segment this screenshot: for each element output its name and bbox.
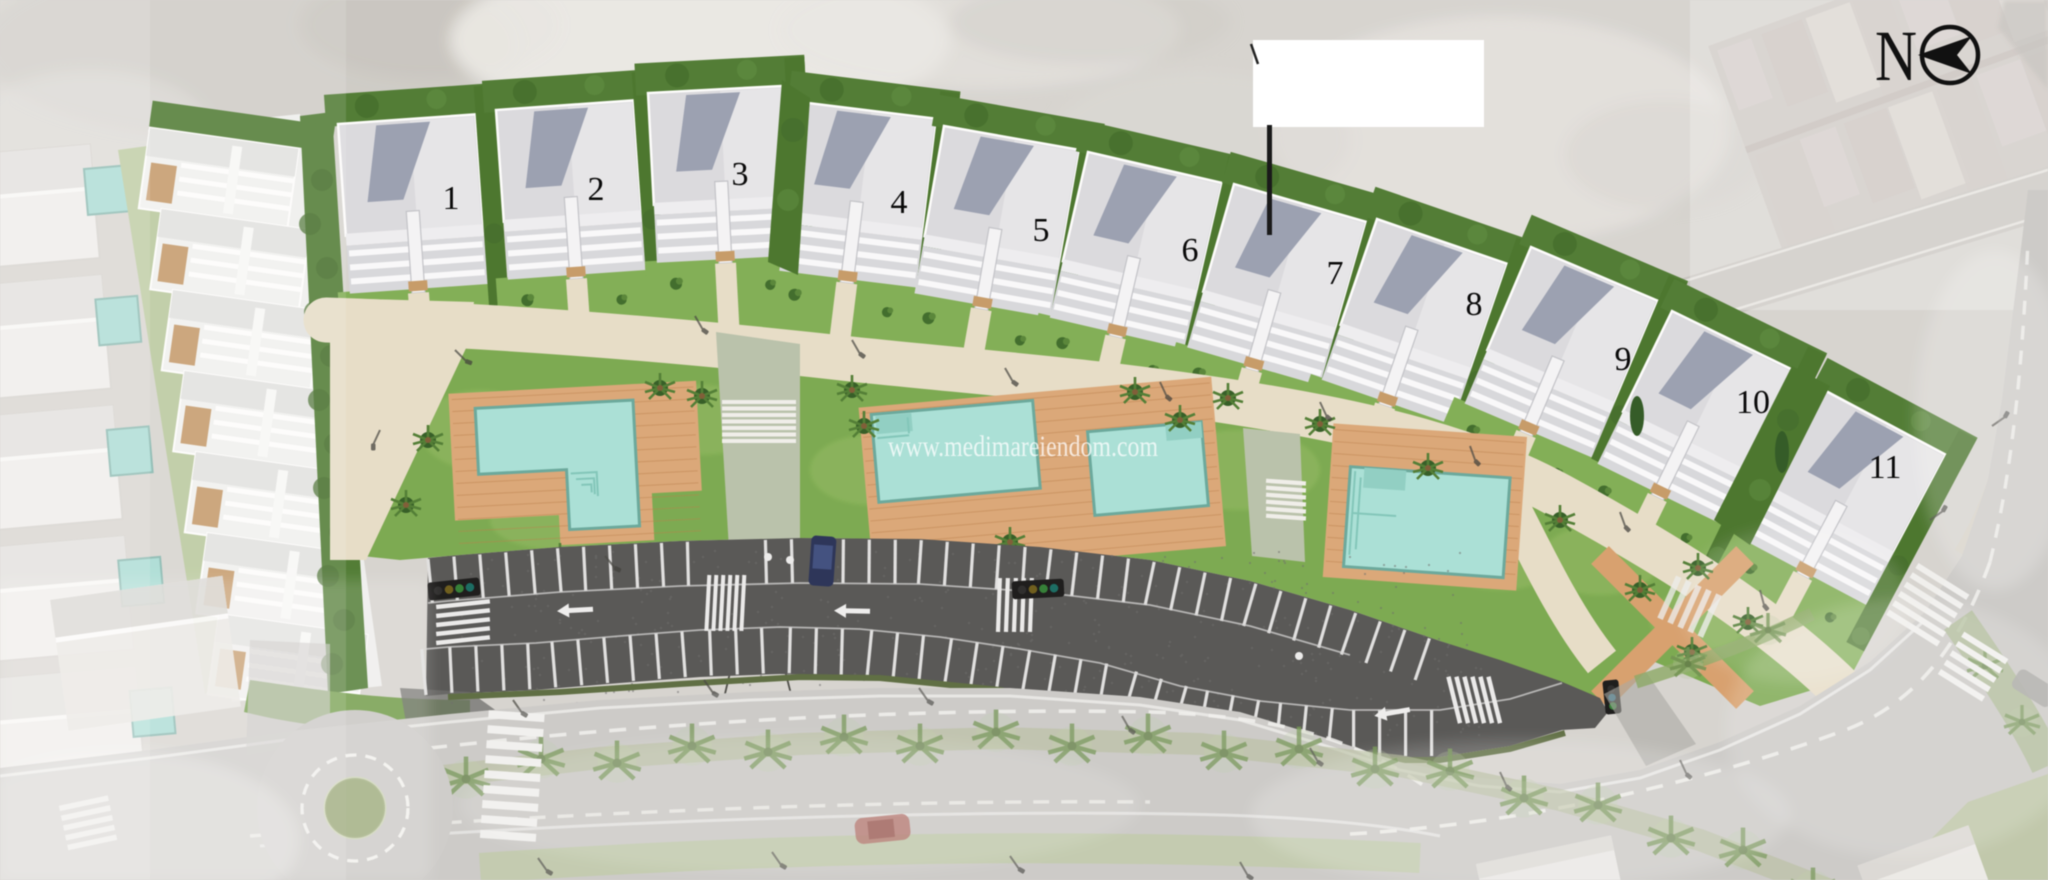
svg-text:www.medimareiendom.com: www.medimareiendom.com	[888, 430, 1158, 463]
svg-text:11: 11	[1869, 449, 1902, 486]
svg-text:10: 10	[1736, 384, 1770, 421]
svg-text:2: 2	[588, 171, 605, 208]
svg-text:8: 8	[1466, 286, 1483, 323]
svg-text:9: 9	[1615, 341, 1632, 378]
svg-text:N: N	[1875, 16, 1917, 96]
svg-text:3: 3	[732, 156, 749, 193]
svg-text:1: 1	[443, 180, 460, 217]
svg-text:6: 6	[1182, 232, 1199, 269]
svg-text:7: 7	[1327, 255, 1344, 292]
svg-text:4: 4	[891, 184, 908, 221]
svg-text:5: 5	[1033, 212, 1050, 249]
